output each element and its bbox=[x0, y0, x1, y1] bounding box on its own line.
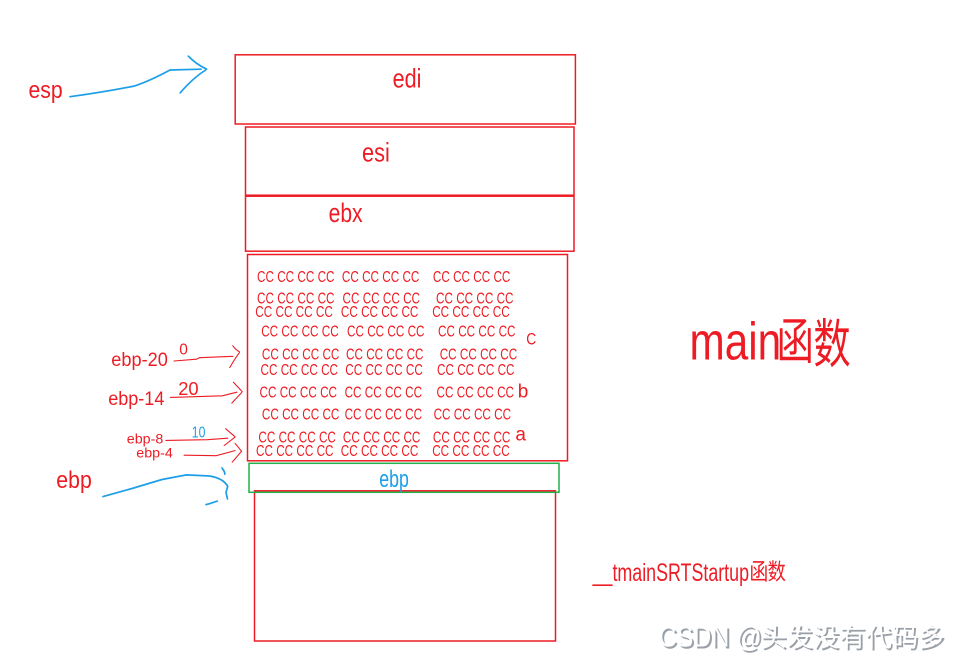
svg-text:CC CC CC CC: CC CC CC CC bbox=[262, 407, 340, 424]
svg-text:CC CC CC CC: CC CC CC CC bbox=[433, 269, 511, 286]
svg-text:CC CC CC CC: CC CC CC CC bbox=[437, 362, 515, 379]
svg-text:20: 20 bbox=[178, 378, 198, 399]
svg-text:CC CC CC CC: CC CC CC CC bbox=[437, 385, 515, 402]
svg-text:ebp: ebp bbox=[56, 467, 92, 494]
svg-text:ebp-20: ebp-20 bbox=[111, 350, 168, 371]
svg-text:CC CC CC CC: CC CC CC CC bbox=[261, 362, 339, 379]
svg-text:CC CC CC CC: CC CC CC CC bbox=[257, 269, 335, 286]
svg-text:ebp-14: ebp-14 bbox=[108, 389, 165, 410]
svg-text:CC CC CC CC: CC CC CC CC bbox=[438, 323, 516, 340]
svg-text:CSDN @: CSDN @ bbox=[659, 622, 762, 654]
svg-text:main: main bbox=[690, 312, 782, 371]
svg-text:CC CC CC CC: CC CC CC CC bbox=[346, 346, 424, 363]
svg-text:esi: esi bbox=[362, 138, 390, 168]
svg-text:CC CC CC CC: CC CC CC CC bbox=[341, 304, 419, 321]
svg-text:CC CC CC CC: CC CC CC CC bbox=[432, 443, 510, 460]
svg-text:edi: edi bbox=[393, 64, 422, 94]
svg-text:CC CC CC CC: CC CC CC CC bbox=[434, 407, 512, 424]
svg-text:a: a bbox=[515, 424, 526, 445]
svg-text:ebx: ebx bbox=[329, 198, 363, 228]
svg-text:C: C bbox=[526, 331, 536, 349]
svg-text:CC CC CC CC: CC CC CC CC bbox=[256, 443, 334, 460]
svg-text:0: 0 bbox=[179, 342, 188, 359]
svg-text:esp: esp bbox=[29, 77, 63, 104]
svg-text:CC CC CC CC: CC CC CC CC bbox=[345, 385, 423, 402]
svg-text:CC CC CC CC: CC CC CC CC bbox=[255, 304, 332, 321]
svg-text:CC CC CC CC: CC CC CC CC bbox=[440, 346, 518, 363]
svg-text:b: b bbox=[518, 382, 529, 403]
svg-text:ebp: ebp bbox=[379, 466, 409, 493]
svg-text:CC CC CC CC: CC CC CC CC bbox=[347, 323, 425, 340]
svg-text:__tmainSRTStartup: __tmainSRTStartup bbox=[592, 559, 749, 587]
svg-text:10: 10 bbox=[192, 425, 206, 442]
svg-text:CC CC CC CC: CC CC CC CC bbox=[262, 346, 340, 363]
svg-text:CC CC CC CC: CC CC CC CC bbox=[345, 362, 423, 379]
svg-text:CC CC CC CC: CC CC CC CC bbox=[432, 304, 510, 321]
svg-text:CC CC CC CC: CC CC CC CC bbox=[260, 385, 338, 402]
svg-text:ebp-4: ebp-4 bbox=[136, 444, 173, 460]
svg-text:CC CC CC CC: CC CC CC CC bbox=[342, 269, 420, 286]
svg-text:CC CC CC CC: CC CC CC CC bbox=[345, 407, 423, 424]
svg-text:CC CC CC CC: CC CC CC CC bbox=[261, 323, 339, 340]
svg-text:CC CC CC CC: CC CC CC CC bbox=[341, 443, 419, 460]
